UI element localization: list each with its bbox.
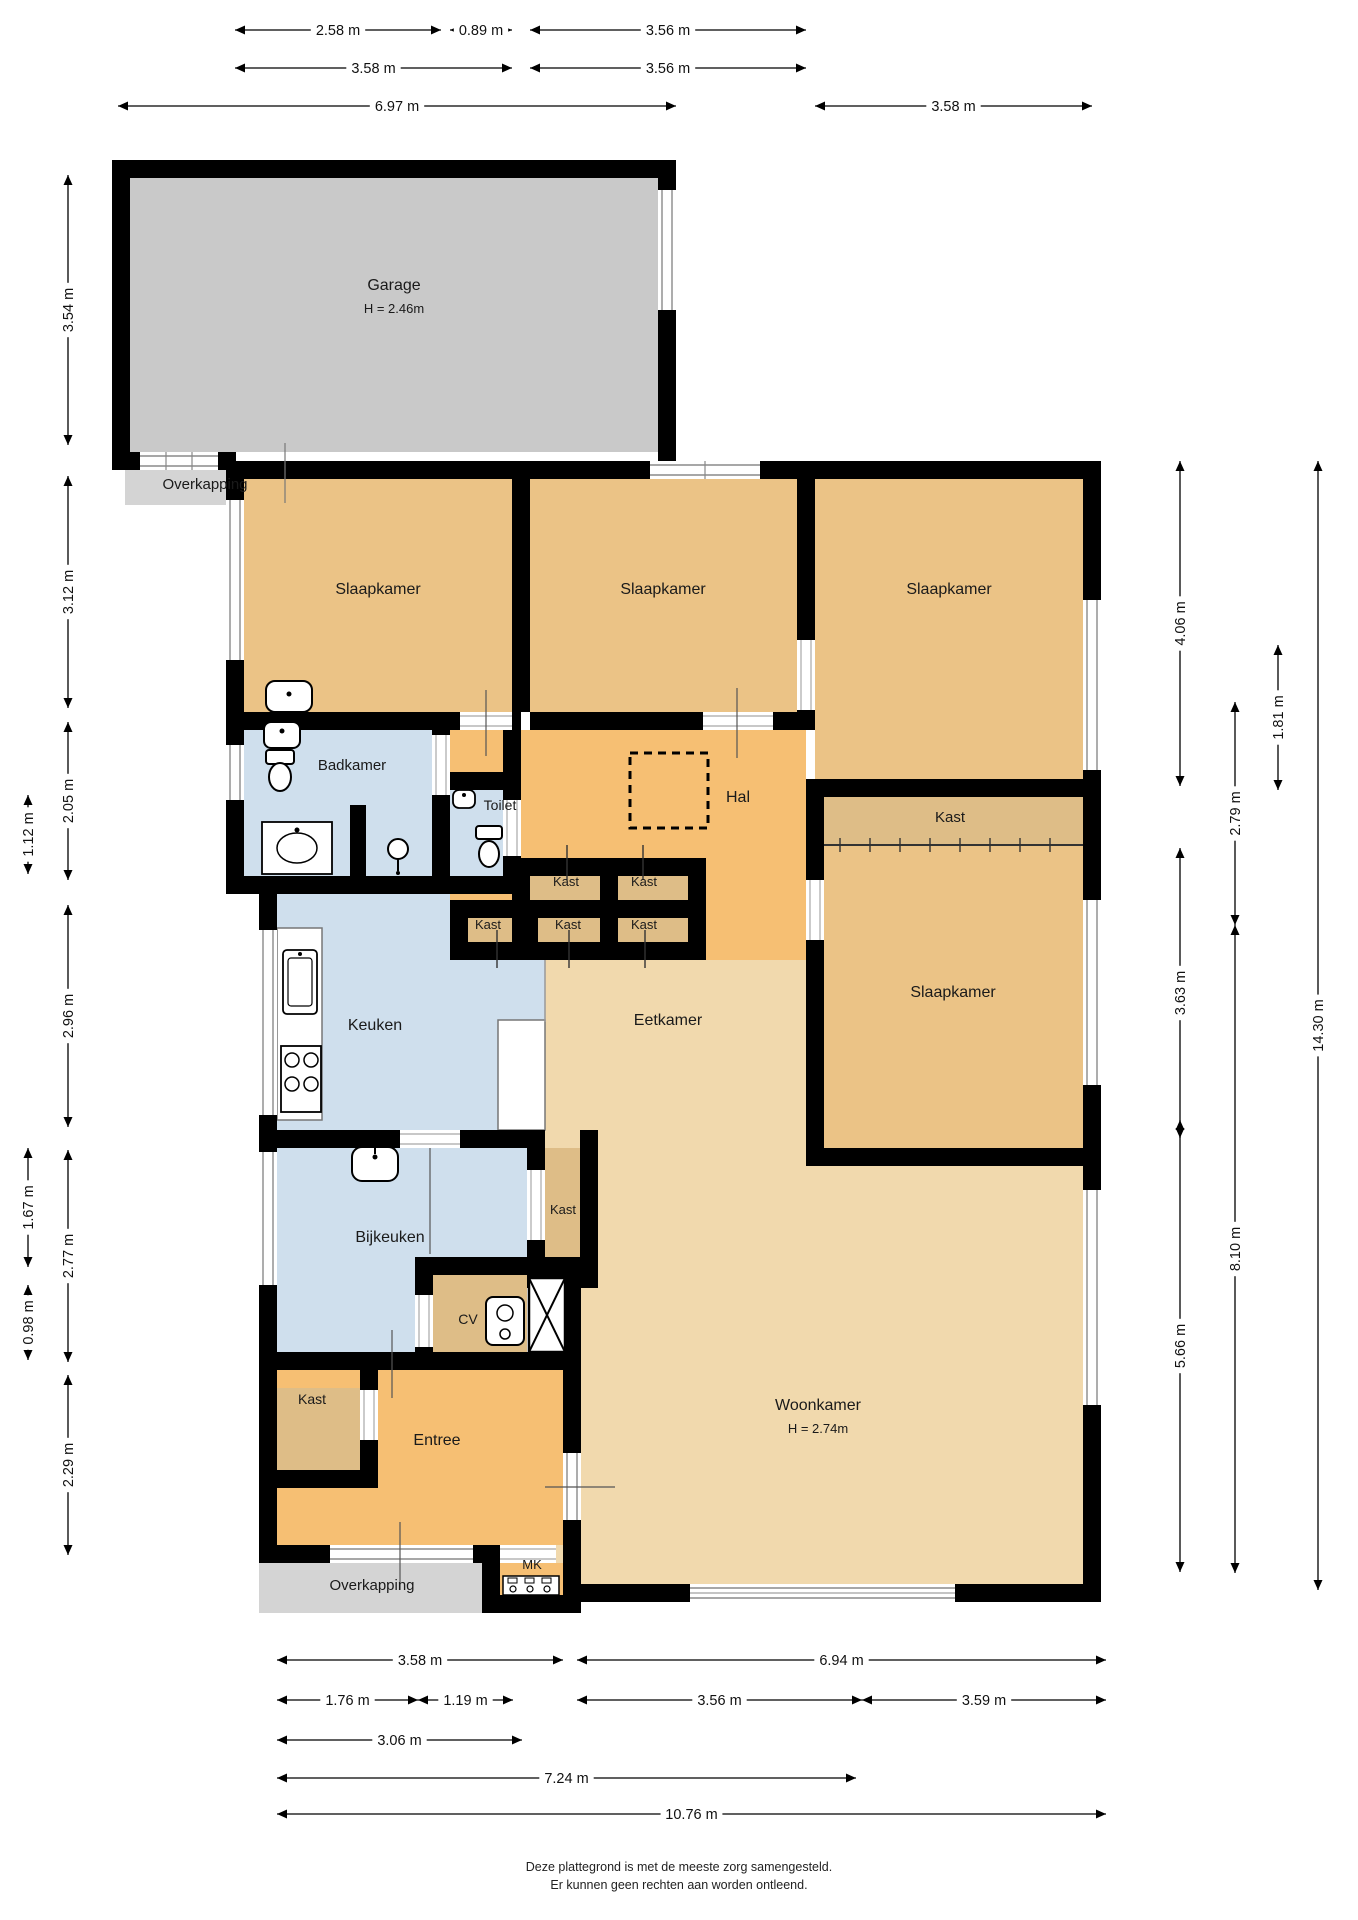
dim-arrow (24, 1148, 33, 1158)
dim-label-right: 4.06 m (1173, 601, 1189, 645)
dim-arrow (24, 1257, 33, 1267)
dim-label-bottom: 10.76 m (665, 1807, 717, 1823)
dim-label-group: 1.81 m (1269, 690, 1287, 744)
room-label-garage: Garage (367, 277, 420, 294)
dim-arrow (502, 64, 512, 73)
dim-arrow (64, 1545, 73, 1555)
dim-arrow (64, 1150, 73, 1160)
dim-arrow (1176, 848, 1185, 858)
room-label-slaapkamer-2: Slaapkamer (620, 581, 706, 598)
dim-arrow (1082, 102, 1092, 111)
wall (806, 779, 824, 1166)
dim-label-bottom: 7.24 m (544, 1771, 588, 1787)
dim-label-right: 5.66 m (1173, 1324, 1189, 1368)
door-opening (400, 1130, 460, 1148)
dim-label-left: 2.05 m (61, 779, 77, 823)
dim-arrow (24, 795, 33, 805)
dim-arrow (1176, 1562, 1185, 1572)
dim-label-group: 3.12 m (59, 565, 77, 619)
dim-arrow (1314, 461, 1323, 471)
dim-arrow (235, 26, 245, 35)
faucet-dot (462, 793, 466, 797)
footer-line-1: Deze plattegrond is met de meeste zorg s… (0, 1858, 1358, 1876)
door-opening (527, 1170, 545, 1240)
wall (112, 160, 676, 178)
dim-label-left: 2.96 m (61, 994, 77, 1038)
dim-arrow (64, 870, 73, 880)
room-label-kast-c: Kast (475, 917, 501, 932)
window (259, 1152, 277, 1285)
room-label-badkamer: Badkamer (318, 757, 386, 774)
dim-arrow (1274, 780, 1283, 790)
door-opening (797, 640, 815, 710)
faucet-dot (295, 828, 300, 833)
dim-arrow (1096, 1810, 1106, 1819)
dim-arrow (846, 1774, 856, 1783)
dim-label-right: 2.79 m (1228, 791, 1244, 835)
dim-label-top: 3.56 m (646, 23, 690, 39)
room-label-mk: MK (522, 1557, 542, 1572)
dim-label-top: 3.58 m (931, 99, 975, 115)
dim-label-bottom: 6.94 m (819, 1653, 863, 1669)
window (259, 930, 277, 1115)
door-opening (703, 712, 773, 730)
window (140, 452, 218, 470)
room-label-hal: Hal (726, 789, 750, 806)
room-label-bijkeuken: Bijkeuken (355, 1229, 424, 1246)
dim-label-bottom: 3.56 m (697, 1693, 741, 1709)
room-label-keuken: Keuken (348, 1017, 402, 1034)
dim-label-left: 1.67 m (21, 1185, 37, 1229)
dim-arrow (64, 905, 73, 915)
dim-arrow (277, 1736, 287, 1745)
toilet-cistern-icon (266, 750, 294, 764)
dim-arrow (64, 175, 73, 185)
dim-arrow (277, 1774, 287, 1783)
dim-arrow (530, 64, 540, 73)
dim-label-group: 4.06 m (1171, 596, 1189, 650)
dim-arrow (1176, 776, 1185, 786)
dim-arrow (64, 1117, 73, 1127)
toilet-room-sink-icon (453, 790, 475, 808)
room-label-overkapping-top: Overkapping (162, 476, 247, 493)
dim-label-group: 1.12 m (19, 807, 37, 861)
dim-arrow (418, 1696, 428, 1705)
room-label-overkapping-bottom: Overkapping (329, 1577, 414, 1594)
dim-label-top: 6.97 m (375, 99, 419, 115)
dim-arrow (64, 1352, 73, 1362)
dim-arrow (64, 435, 73, 445)
dim-label-bottom: 3.06 m (377, 1733, 421, 1749)
dim-arrow (852, 1696, 862, 1705)
dim-arrow (431, 26, 441, 35)
dim-arrow (24, 1350, 33, 1360)
dim-arrow (408, 1696, 418, 1705)
window (1083, 900, 1101, 1085)
wall (350, 805, 366, 876)
dim-arrow (235, 64, 245, 73)
dim-label-top: 2.58 m (316, 23, 360, 39)
door-opening (415, 1295, 433, 1347)
door-opening (432, 735, 450, 795)
dim-label-right: 3.63 m (1173, 971, 1189, 1015)
dim-arrow (277, 1696, 287, 1705)
dim-arrow (1314, 1580, 1323, 1590)
shower-head-icon (388, 839, 408, 859)
dim-arrow (277, 1810, 287, 1819)
dim-label-bottom: 3.59 m (962, 1693, 1006, 1709)
kitchen-counter-right (498, 1020, 545, 1130)
window (226, 745, 244, 800)
dim-label-group: 2.29 m (59, 1438, 77, 1492)
dim-arrow (64, 722, 73, 732)
wall (806, 1148, 1101, 1166)
dim-arrow (577, 1656, 587, 1665)
dim-arrow (815, 102, 825, 111)
wall (226, 876, 512, 894)
door-opening (806, 880, 824, 940)
dim-arrow (796, 26, 806, 35)
wall (259, 1470, 378, 1488)
dim-arrow (1176, 461, 1185, 471)
dim-label-group: 3.54 m (59, 283, 77, 337)
room-label-kast-a: Kast (553, 874, 579, 889)
room-label-kast-e: Kast (631, 917, 657, 932)
dim-arrow (118, 102, 128, 111)
toilet-bowl-icon (269, 763, 291, 791)
dim-arrow (1096, 1656, 1106, 1665)
room-label-toilet: Toilet (484, 797, 517, 813)
dim-arrow (64, 1375, 73, 1385)
dim-label-group: 14.30 m (1309, 995, 1327, 1057)
faucet-dot (280, 729, 285, 734)
room-label-kast-entree: Kast (298, 1391, 326, 1407)
dim-label-right: 14.30 m (1311, 999, 1327, 1051)
wall (450, 900, 706, 918)
window (1083, 600, 1101, 770)
dim-arrow (1231, 925, 1240, 935)
wall (450, 942, 706, 960)
dim-label-top: 0.89 m (459, 23, 503, 39)
dim-arrow (666, 102, 676, 111)
footer-line-2: Er kunnen geen rechten aan worden ontlee… (0, 1876, 1358, 1894)
dim-label-group: 2.05 m (59, 774, 77, 828)
room-label-cv: CV (458, 1311, 478, 1327)
faucet-dot (373, 1155, 378, 1160)
dim-label-group: 8.10 m (1226, 1222, 1244, 1276)
dim-arrow (577, 1696, 587, 1705)
dim-label-right: 8.10 m (1228, 1227, 1244, 1271)
dim-arrow (277, 1656, 287, 1665)
dim-arrow (862, 1696, 872, 1705)
dim-label-group: 3.63 m (1171, 966, 1189, 1020)
room-label-kast-groot: Kast (935, 809, 966, 826)
floorplan: GarageH = 2.46mOverkappingSlaapkamerSlaa… (0, 0, 1358, 1920)
dim-label-left: 2.29 m (61, 1443, 77, 1487)
dim-label-top: 3.58 m (351, 61, 395, 77)
dim-label-right: 1.81 m (1271, 695, 1287, 739)
dim-arrow (24, 1285, 33, 1295)
window (1083, 1190, 1101, 1405)
room-label-woonkamer: Woonkamer (775, 1397, 862, 1414)
faucet-dot (287, 692, 292, 697)
dim-label-left: 3.54 m (61, 288, 77, 332)
dim-label-group: 5.66 m (1171, 1319, 1189, 1373)
shower-dot (396, 871, 400, 875)
wall (815, 779, 1101, 797)
page: GarageH = 2.46mOverkappingSlaapkamerSlaa… (0, 0, 1358, 1920)
dim-arrow (1274, 645, 1283, 655)
wall (450, 900, 468, 960)
footer: Deze plattegrond is met de meeste zorg s… (0, 1858, 1358, 1894)
dim-label-top: 3.56 m (646, 61, 690, 77)
kitchen-sink-basin (288, 958, 312, 1006)
dim-label-group: 2.79 m (1226, 786, 1244, 840)
window (658, 190, 676, 310)
dim-label-group: 2.96 m (59, 989, 77, 1043)
dim-arrow (1231, 702, 1240, 712)
toilet-cistern-icon (476, 826, 502, 839)
dim-arrow (1231, 1563, 1240, 1573)
dim-label-group: 2.77 m (59, 1229, 77, 1283)
dim-arrow (64, 698, 73, 708)
room-note-garage: H = 2.46m (364, 301, 424, 316)
dim-arrow (64, 476, 73, 486)
dim-label-group: 0.98 m (19, 1295, 37, 1349)
dim-label-bottom: 1.76 m (325, 1693, 369, 1709)
room-label-entree: Entree (413, 1432, 460, 1449)
dim-arrow (503, 1696, 513, 1705)
dim-arrow (1176, 1120, 1185, 1130)
dim-arrow (512, 1736, 522, 1745)
dim-label-left: 3.12 m (61, 570, 77, 614)
faucet-dot (298, 952, 302, 956)
room-label-kast-d: Kast (555, 917, 581, 932)
room-label-eetkamer: Eetkamer (634, 1012, 703, 1029)
door-opening (360, 1390, 378, 1440)
room-label-slaapkamer-1: Slaapkamer (335, 581, 421, 598)
room-label-slaapkamer-3: Slaapkamer (906, 581, 992, 598)
wall (259, 1352, 563, 1370)
room-label-kast-bijkeuken: Kast (550, 1202, 576, 1217)
dim-label-bottom: 1.19 m (443, 1693, 487, 1709)
room-note-woonkamer: H = 2.74m (788, 1421, 848, 1436)
wall (112, 160, 130, 470)
room-label-slaapkamer-4: Slaapkamer (910, 984, 996, 1001)
dim-arrow (553, 1656, 563, 1665)
dim-label-group: 1.67 m (19, 1180, 37, 1234)
toilet-bowl-icon (479, 841, 499, 867)
dim-arrow (1231, 915, 1240, 925)
wall (688, 858, 706, 960)
wall (415, 1257, 563, 1275)
dim-label-left: 0.98 m (21, 1300, 37, 1344)
window (226, 500, 244, 660)
room-label-kast-b: Kast (631, 874, 657, 889)
dim-label-left: 2.77 m (61, 1234, 77, 1278)
dim-label-bottom: 3.58 m (398, 1653, 442, 1669)
wall (580, 1130, 598, 1288)
window (330, 1545, 473, 1563)
dim-arrow (1096, 1696, 1106, 1705)
wall (600, 858, 618, 960)
dim-label-left: 1.12 m (21, 812, 37, 856)
dim-arrow (24, 864, 33, 874)
wall (512, 479, 530, 712)
dim-arrow (530, 26, 540, 35)
vanity-basin-icon (277, 833, 317, 863)
bedroom-3-floor (815, 479, 1083, 785)
wall (520, 900, 538, 960)
bathroom-sink-icon (264, 722, 300, 748)
dim-arrow (796, 64, 806, 73)
